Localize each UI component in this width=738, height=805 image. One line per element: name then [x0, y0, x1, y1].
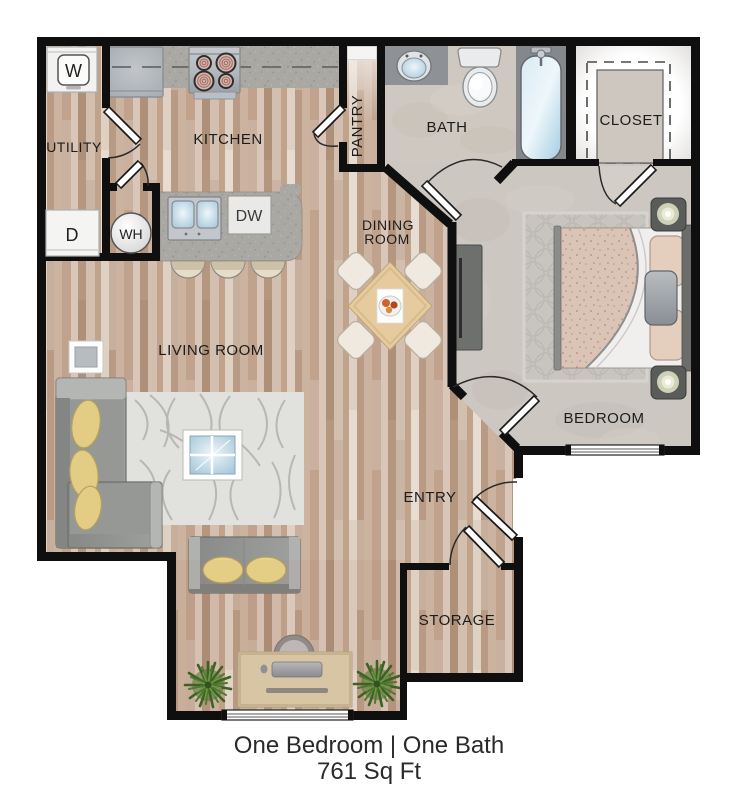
- svg-text:LIVING ROOM: LIVING ROOM: [158, 342, 264, 359]
- svg-text:KITCHEN: KITCHEN: [193, 131, 262, 148]
- svg-text:ENTRY: ENTRY: [403, 489, 456, 506]
- svg-text:WH: WH: [119, 226, 142, 242]
- svg-text:D: D: [66, 225, 79, 245]
- svg-text:STORAGE: STORAGE: [419, 612, 496, 629]
- svg-text:ROOM: ROOM: [364, 231, 410, 247]
- svg-text:BATH: BATH: [427, 119, 468, 136]
- svg-text:W: W: [65, 61, 82, 81]
- svg-text:BEDROOM: BEDROOM: [563, 410, 644, 427]
- svg-text:DW: DW: [236, 208, 264, 225]
- svg-text:UTILITY: UTILITY: [46, 139, 102, 155]
- svg-text:PANTRY: PANTRY: [349, 95, 366, 157]
- svg-text:761 Sq Ft: 761 Sq Ft: [317, 758, 421, 785]
- svg-text:CLOSET: CLOSET: [599, 112, 662, 129]
- svg-text:One Bedroom | One Bath: One Bedroom | One Bath: [234, 732, 504, 759]
